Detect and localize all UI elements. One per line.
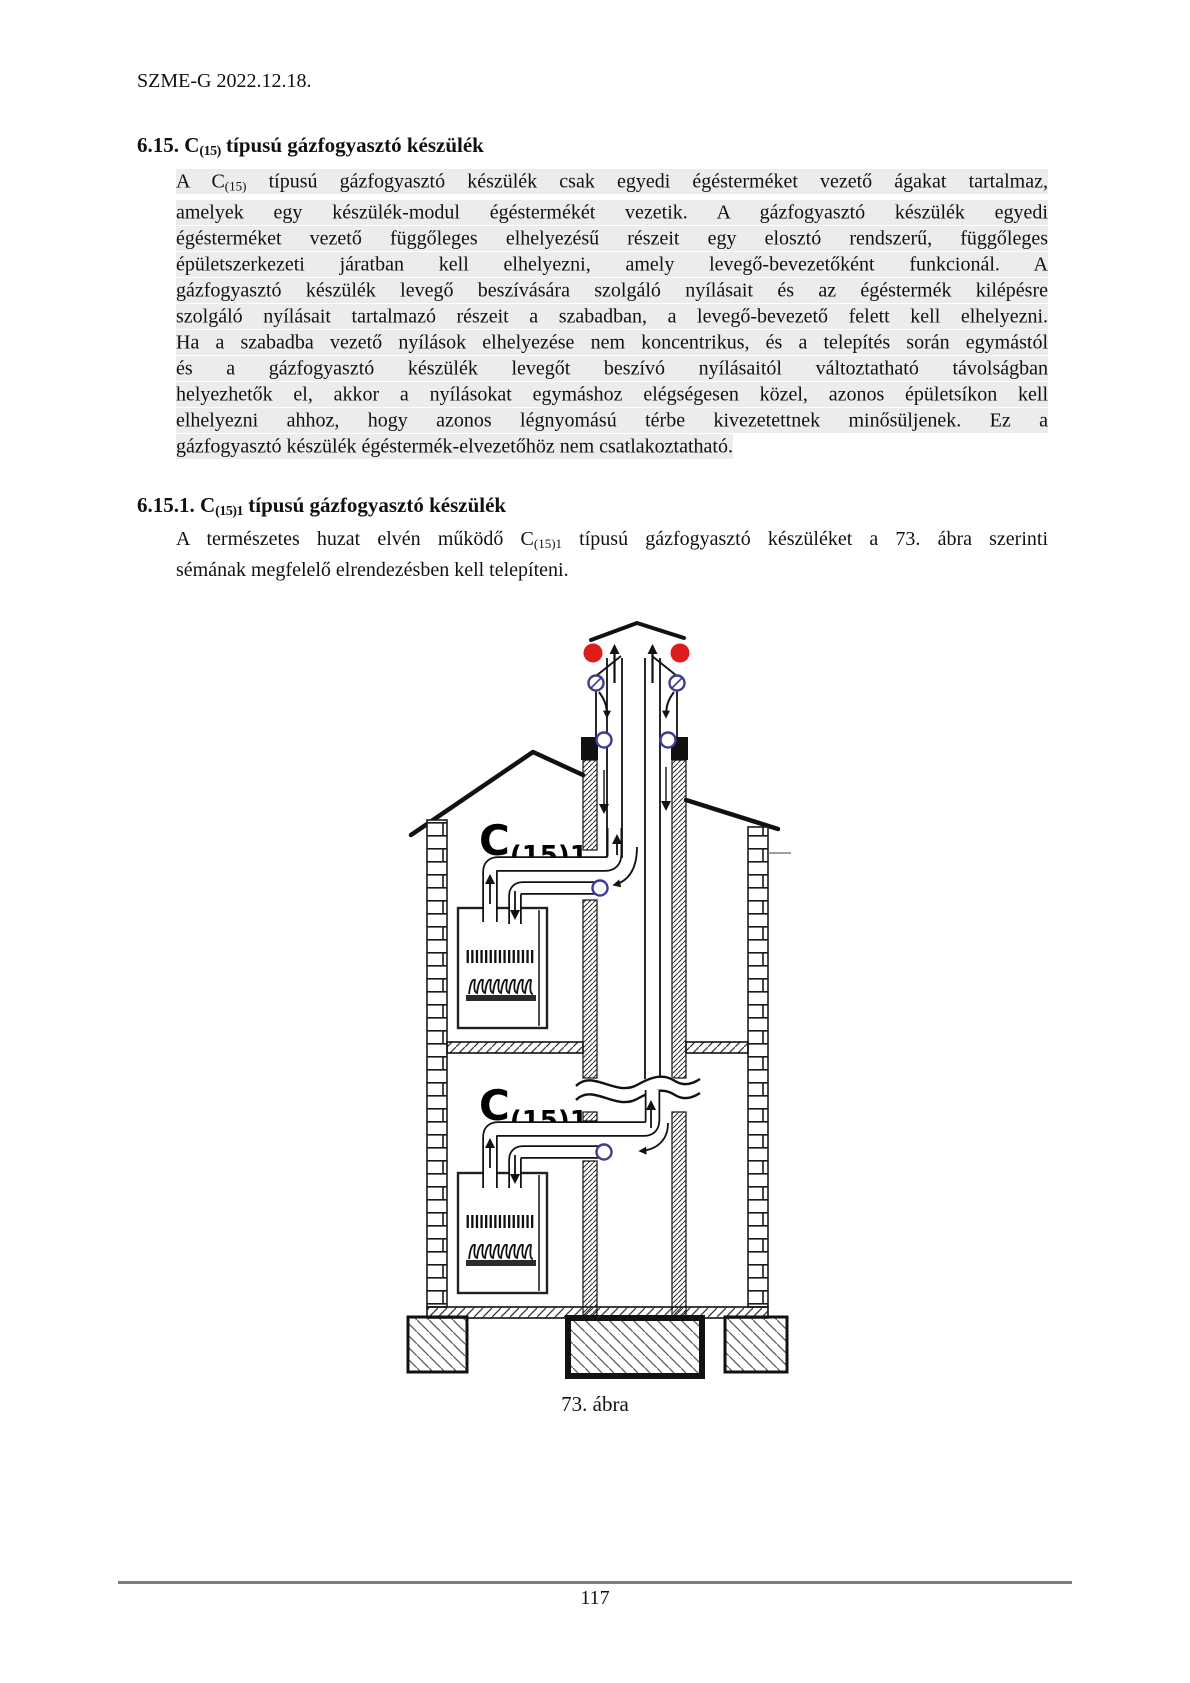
paragraph-line: A természetes huzat elvén működő C(15)1 … <box>176 526 1048 557</box>
flue-outlet-dot-right <box>671 644 690 663</box>
foundation-center <box>568 1318 702 1376</box>
page-number: 117 <box>0 1587 1190 1610</box>
document-id-header: SZME-G 2022.12.18. <box>137 70 311 93</box>
paragraph-line: gázfogyasztó készülék égéstermék-elvezet… <box>176 433 1048 459</box>
paragraph-line: és a gázfogyasztó készülék levegőt beszí… <box>176 355 1048 381</box>
flue-outlet-dot-left <box>584 644 603 663</box>
brick-wall-right <box>748 827 768 1307</box>
air-intake-arrow-right <box>666 692 674 717</box>
paragraph-line: épületszerkezeti járatban kell elhelyezn… <box>176 251 1048 277</box>
inline-subscript: (15) <box>225 178 247 193</box>
upper-connection-circle <box>593 881 608 896</box>
terminal-cap-chevron <box>591 623 684 640</box>
heading-number: 6.15. <box>137 133 179 157</box>
terminal-casing <box>596 656 677 737</box>
shaft-opening-circle-left <box>597 733 612 748</box>
paragraph-line: helyezhetők el, akkor a nyílásokat egymá… <box>176 381 1048 407</box>
foundation-left <box>408 1317 467 1372</box>
paragraph-line: A C(15) típusú gázfogyasztó készülék csa… <box>176 168 1048 199</box>
paragraph-line: elhelyezni ahhoz, hogy azonos légnyomású… <box>176 407 1048 433</box>
paragraph-line: gázfogyasztó készülék levegő beszívására… <box>176 277 1048 303</box>
burner-base <box>466 995 536 1001</box>
figure-caption: 73. ábra <box>0 1392 1190 1417</box>
figure-73-diagram: C(15)1 C(15)1 <box>393 588 793 1388</box>
shaft-wall-right <box>672 760 686 1318</box>
shaft-break-waves <box>576 1077 700 1102</box>
inline-subscript: (15)1 <box>534 536 562 551</box>
paragraph-6-15: A C(15) típusú gázfogyasztó készülék csa… <box>176 168 1048 459</box>
heading-subscript: (15)1 <box>215 504 243 519</box>
section-heading-6-15-1: 6.15.1. C(15)1 típusú gázfogyasztó készü… <box>137 493 506 520</box>
heading-number: 6.15.1. <box>137 493 195 517</box>
floor-slab-right <box>686 1042 748 1053</box>
paragraph-line: amelyek egy készülék-modul égéstermékét … <box>176 199 1048 225</box>
footer-divider <box>118 1581 1072 1584</box>
air-intake-arrow-left <box>599 692 607 717</box>
gas-boiler-upper <box>458 908 547 1028</box>
floor-slab-left <box>447 1042 583 1053</box>
flue-pipe-lower <box>645 658 660 1082</box>
gas-boiler-lower <box>458 1173 547 1293</box>
shaft-opening-circle-right <box>661 733 676 748</box>
heat-exchanger-fins <box>465 950 535 963</box>
paragraph-6-15-1: A természetes huzat elvén működő C(15)1 … <box>176 526 1048 583</box>
section-heading-6-15: 6.15. C(15) típusú gázfogyasztó készülék <box>137 133 484 160</box>
heading-subscript: (15) <box>199 144 220 159</box>
brick-wall-left <box>427 820 447 1307</box>
paragraph-line: szolgáló nyílásait tartalmazó részeit a … <box>176 303 1048 329</box>
paragraph-line: égésterméket vezető függőleges elhelyezé… <box>176 225 1048 251</box>
lower-connection-circle <box>597 1145 612 1160</box>
roof-right <box>686 800 778 829</box>
foundation-right <box>725 1317 787 1372</box>
paragraph-line: sémának megfelelő elrendezésben kell tel… <box>176 557 1048 583</box>
paragraph-line: Ha a szabadba vezető nyílások elhelyezés… <box>176 329 1048 355</box>
